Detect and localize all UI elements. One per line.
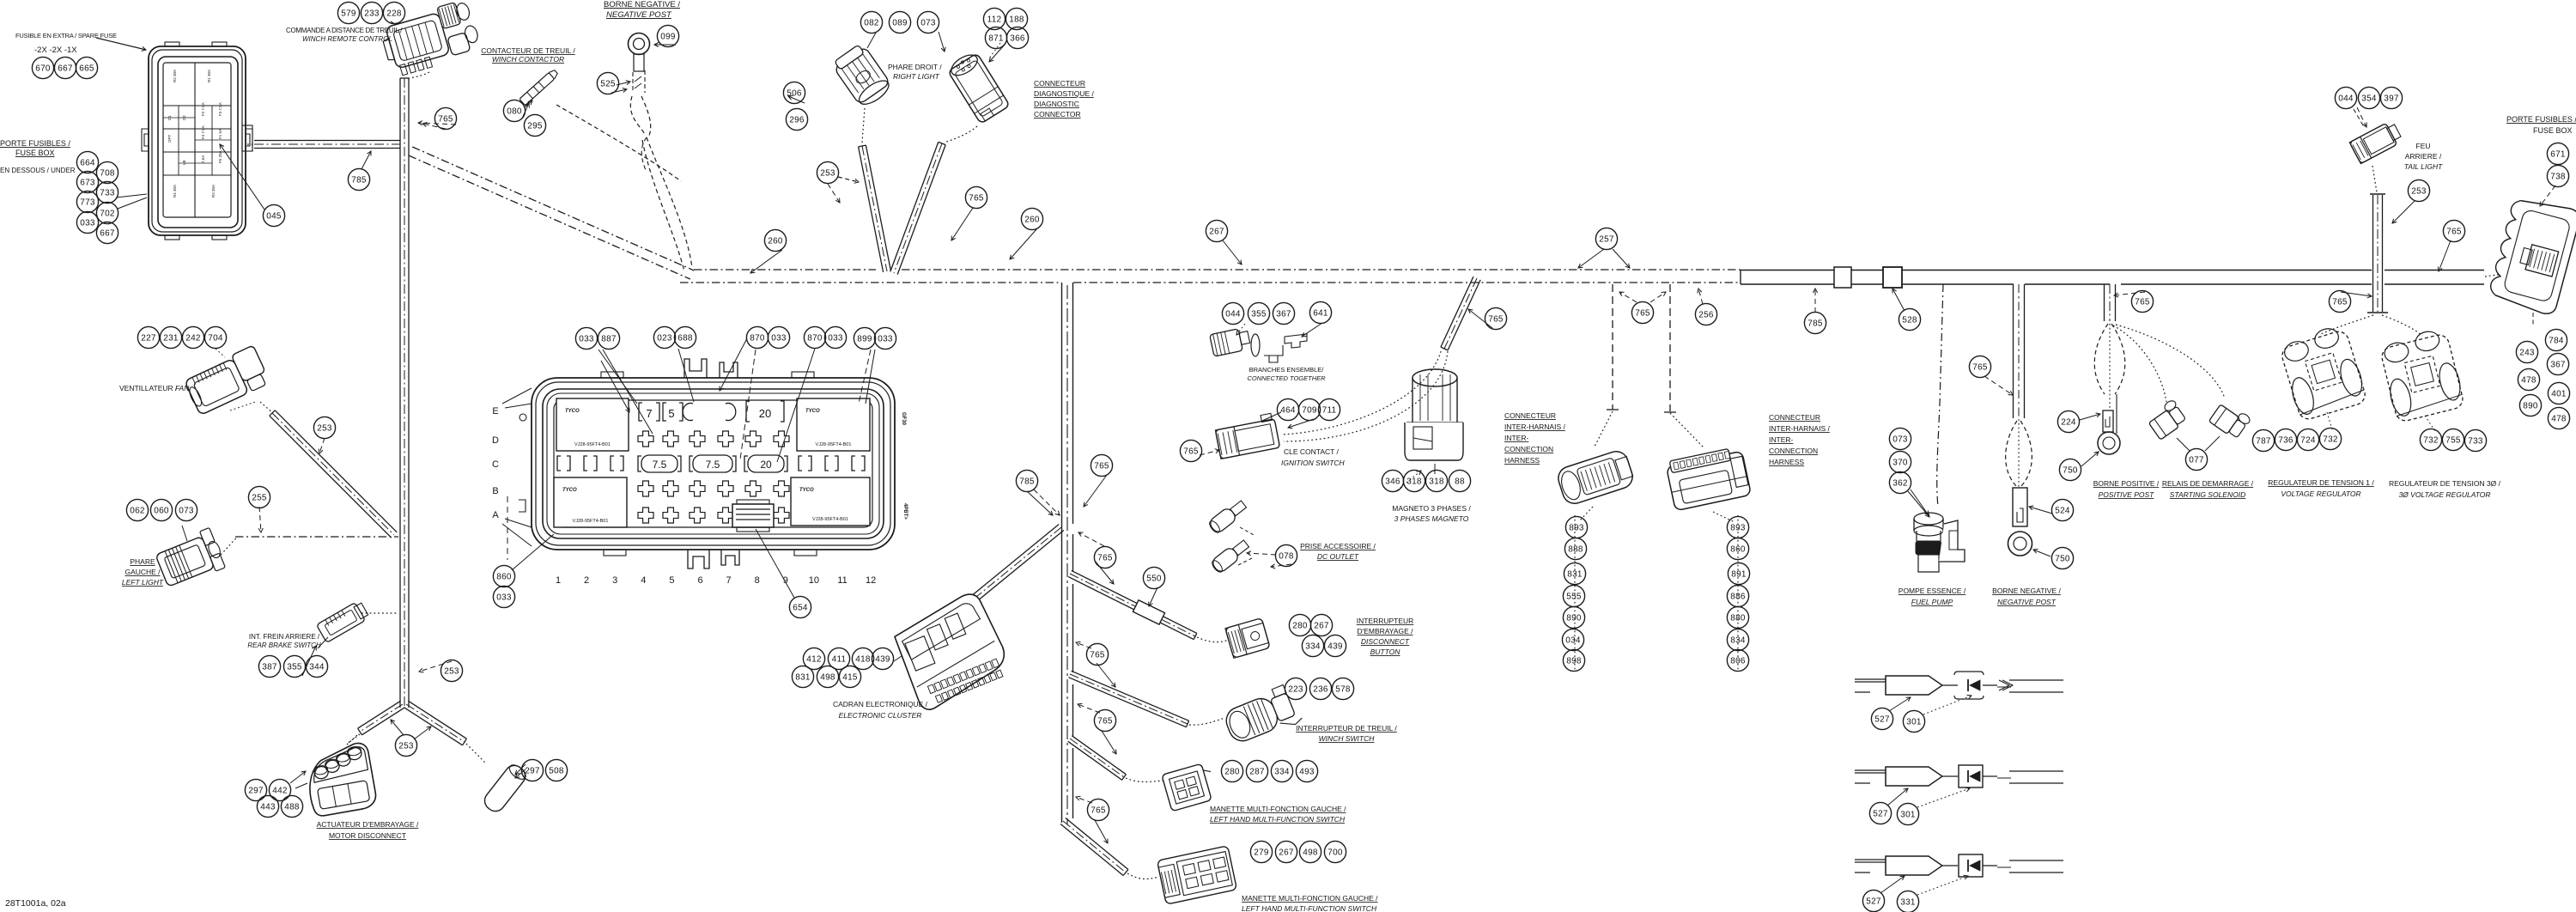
- svg-text:VOLTAGE REGULATOR: VOLTAGE REGULATOR: [2281, 489, 2360, 498]
- svg-text:A: A: [492, 510, 499, 520]
- svg-text:301: 301: [1906, 718, 1922, 727]
- svg-text:BORNE NEGATIVE /: BORNE NEGATIVE /: [604, 0, 680, 9]
- svg-text:301: 301: [1900, 811, 1916, 820]
- svg-text:654: 654: [793, 604, 808, 613]
- svg-text:034: 034: [1565, 636, 1581, 646]
- svg-text:478: 478: [2551, 415, 2567, 424]
- svg-text:CONNECTED TOGETHER: CONNECTED TOGETHER: [1247, 374, 1326, 382]
- svg-text:280: 280: [1224, 768, 1240, 777]
- svg-text:579: 579: [341, 9, 356, 19]
- svg-text:755: 755: [2445, 436, 2461, 446]
- svg-text:667: 667: [58, 64, 73, 74]
- svg-text:D2: D2: [182, 115, 186, 120]
- svg-text:CONNECTEUR: CONNECTEUR: [1769, 413, 1820, 422]
- svg-text:439: 439: [875, 655, 890, 665]
- svg-text:F1 5A: F1 5A: [218, 129, 222, 139]
- svg-text:498: 498: [820, 673, 835, 683]
- svg-text:-2X -2X -1X: -2X -2X -1X: [34, 46, 77, 55]
- svg-text:527: 527: [1866, 897, 1881, 907]
- svg-text:834: 834: [1730, 636, 1746, 646]
- svg-text:765: 765: [1488, 315, 1504, 325]
- svg-text:256: 256: [1698, 311, 1714, 320]
- svg-text:243: 243: [2519, 349, 2535, 358]
- svg-text:765: 765: [1094, 462, 1109, 471]
- svg-text:354: 354: [2361, 94, 2377, 104]
- svg-text:253: 253: [444, 667, 459, 677]
- svg-text:BRANCHES ENSEMBLE/: BRANCHES ENSEMBLE/: [1249, 366, 1325, 374]
- svg-text:062: 062: [130, 507, 145, 516]
- svg-text:331: 331: [1900, 898, 1916, 908]
- svg-text:418: 418: [855, 655, 871, 665]
- svg-text:344: 344: [309, 663, 325, 672]
- svg-text:555: 555: [1566, 593, 1582, 602]
- svg-text:370: 370: [1893, 459, 1908, 468]
- svg-text:073: 073: [1893, 435, 1908, 445]
- svg-text:099: 099: [660, 33, 676, 42]
- svg-text:888: 888: [1568, 545, 1583, 555]
- svg-text:893: 893: [1569, 524, 1584, 533]
- svg-text:765: 765: [1090, 651, 1105, 660]
- svg-text:738: 738: [2550, 173, 2566, 182]
- svg-text:PORTE FUSIBLES /: PORTE FUSIBLES /: [0, 139, 70, 148]
- svg-text:708: 708: [100, 169, 115, 179]
- svg-text:GF30: GF30: [901, 412, 906, 426]
- svg-text:TYCO: TYCO: [805, 409, 820, 414]
- svg-text:702: 702: [100, 210, 115, 219]
- svg-text:PHARE: PHARE: [130, 557, 155, 566]
- svg-text:BORNE POSITIVE /: BORNE POSITIVE /: [2093, 479, 2160, 488]
- svg-text:736: 736: [2278, 436, 2293, 446]
- svg-text:890: 890: [2523, 402, 2538, 411]
- svg-text:765: 765: [2332, 298, 2348, 307]
- svg-text:267: 267: [1279, 848, 1294, 858]
- svg-text:334: 334: [1274, 768, 1290, 777]
- svg-text:12: 12: [866, 575, 876, 586]
- svg-text:765: 765: [1097, 554, 1113, 563]
- svg-text:228: 228: [386, 9, 402, 19]
- svg-text:318: 318: [1429, 477, 1444, 487]
- svg-text:478: 478: [2521, 376, 2537, 386]
- svg-text:880: 880: [1730, 614, 1746, 623]
- svg-text:750: 750: [2055, 555, 2070, 564]
- svg-text:493: 493: [1299, 768, 1315, 777]
- svg-text:401: 401: [2551, 390, 2567, 399]
- svg-text:765: 765: [2135, 298, 2150, 307]
- svg-text:224: 224: [2061, 418, 2076, 428]
- svg-text:7: 7: [646, 407, 652, 420]
- svg-text:CONNECTOR: CONNECTOR: [1034, 110, 1081, 119]
- svg-text:665: 665: [79, 64, 94, 74]
- svg-text:BUTTON: BUTTON: [1370, 648, 1401, 656]
- svg-text:287: 287: [1249, 768, 1265, 777]
- svg-text:CONNECTION: CONNECTION: [1504, 445, 1553, 453]
- svg-text:887: 887: [601, 335, 617, 344]
- svg-text:88: 88: [1455, 477, 1465, 487]
- svg-text:366: 366: [1010, 34, 1025, 44]
- svg-text:506: 506: [787, 89, 802, 99]
- svg-text:E: E: [492, 406, 498, 416]
- svg-text:RIGHT LIGHT: RIGHT LIGHT: [893, 72, 940, 81]
- svg-text:MANETTE MULTI-FONCTION GAUCHE: MANETTE MULTI-FONCTION GAUCHE /: [1242, 894, 1378, 903]
- svg-text:CONNECTION: CONNECTION: [1769, 447, 1818, 455]
- svg-text:488: 488: [284, 803, 300, 812]
- svg-text:10: 10: [809, 575, 819, 586]
- svg-text:9: 9: [783, 575, 788, 586]
- svg-text:464: 464: [1280, 406, 1296, 416]
- svg-text:260: 260: [1024, 216, 1040, 225]
- svg-text:ELECTRONIC CLUSTER: ELECTRONIC CLUSTER: [839, 711, 922, 720]
- svg-text:ACTUATEUR D'EMBRAYAGE /: ACTUATEUR D'EMBRAYAGE /: [317, 820, 419, 829]
- svg-text:MOTOR DISCONNECT: MOTOR DISCONNECT: [329, 831, 406, 840]
- svg-text:765: 765: [2446, 228, 2462, 237]
- svg-text:MANETTE MULTI-FONCTION GAUCHE: MANETTE MULTI-FONCTION GAUCHE /: [1210, 805, 1346, 813]
- svg-text:F5 20A: F5 20A: [218, 150, 222, 163]
- svg-text:R4 30A: R4 30A: [173, 185, 177, 198]
- svg-text:7.5: 7.5: [706, 459, 720, 471]
- svg-text:CLE CONTACT /: CLE CONTACT /: [1284, 447, 1340, 456]
- svg-text:044: 044: [1225, 310, 1241, 319]
- svg-text:033: 033: [828, 334, 843, 344]
- svg-text:671: 671: [2550, 150, 2566, 160]
- svg-text:524: 524: [2055, 507, 2070, 516]
- svg-text:297: 297: [525, 767, 540, 776]
- svg-text:20: 20: [759, 407, 771, 420]
- svg-text:CONNECTEUR: CONNECTEUR: [1034, 79, 1085, 88]
- svg-text:296: 296: [789, 116, 805, 125]
- svg-text:VJ28-95FT4-B01: VJ28-95FT4-B01: [573, 519, 609, 524]
- svg-text:NEGATIVE POST: NEGATIVE POST: [606, 10, 672, 20]
- svg-text:TYCO: TYCO: [799, 488, 814, 493]
- svg-text:724: 724: [2300, 436, 2316, 446]
- svg-text:TYCO: TYCO: [562, 488, 577, 493]
- svg-text:B: B: [492, 486, 498, 496]
- svg-text:664: 664: [80, 159, 95, 168]
- svg-text:860: 860: [1730, 545, 1746, 555]
- svg-text:527: 527: [1874, 715, 1890, 725]
- svg-text:188: 188: [1009, 15, 1024, 25]
- svg-text:893: 893: [1730, 524, 1746, 533]
- svg-text:INT. FREIN ARRIERE /: INT. FREIN ARRIERE /: [249, 633, 320, 641]
- svg-text:871: 871: [988, 34, 1004, 44]
- svg-text:898: 898: [1566, 657, 1582, 666]
- svg-text:4: 4: [641, 575, 646, 586]
- svg-text:750: 750: [2063, 466, 2078, 476]
- svg-text:EN DESSOUS / UNDER: EN DESSOUS / UNDER: [0, 167, 76, 174]
- svg-text:870: 870: [750, 334, 765, 344]
- svg-text:260: 260: [768, 237, 783, 246]
- svg-text:023: 023: [657, 334, 672, 344]
- svg-text:POMPE ESSENCE /: POMPE ESSENCE /: [1899, 587, 1966, 595]
- svg-text:CADRAN ELECTRONIQUE /: CADRAN ELECTRONIQUE /: [833, 700, 928, 708]
- svg-text:7.5: 7.5: [653, 459, 667, 471]
- svg-text:R3 30A: R3 30A: [211, 185, 216, 198]
- svg-text:355: 355: [1251, 310, 1267, 319]
- svg-text:765: 765: [1635, 309, 1650, 319]
- svg-text:670: 670: [35, 64, 51, 74]
- svg-text:525: 525: [600, 80, 616, 89]
- svg-text:FUSE BOX: FUSE BOX: [2533, 126, 2573, 135]
- svg-text:8: 8: [755, 575, 760, 586]
- svg-text:R2 30A: R2 30A: [173, 70, 177, 82]
- svg-text:297: 297: [248, 787, 264, 796]
- svg-text:5: 5: [669, 575, 674, 586]
- svg-text:033: 033: [878, 335, 893, 344]
- svg-text:785: 785: [351, 176, 367, 185]
- svg-text:WINCH CONTACTOR: WINCH CONTACTOR: [492, 55, 564, 64]
- svg-text:773: 773: [80, 198, 95, 208]
- svg-text:7: 7: [726, 575, 732, 586]
- svg-text:765: 765: [969, 194, 984, 204]
- svg-text:498: 498: [1303, 848, 1318, 858]
- svg-text:DIAGNOSTIQUE /: DIAGNOSTIQUE /: [1034, 89, 1095, 98]
- svg-text:3: 3: [612, 575, 617, 586]
- svg-text:INTER-: INTER-: [1504, 434, 1529, 442]
- svg-text:INTERRUPTEUR DE TREUIL /: INTERRUPTEUR DE TREUIL /: [1296, 724, 1397, 733]
- svg-text:PRISE ACCESSOIRE /: PRISE ACCESSOIRE /: [1300, 542, 1376, 550]
- svg-text:673: 673: [80, 179, 95, 188]
- svg-text:COMMANDE A DISTANCE DE TREUIL: COMMANDE A DISTANCE DE TREUIL /: [286, 27, 403, 34]
- svg-text:LEFT HAND MULTI-FUNCTION SWITC: LEFT HAND MULTI-FUNCTION SWITCH: [1242, 904, 1377, 912]
- svg-text:STARTING SOLENOID: STARTING SOLENOID: [2170, 490, 2245, 499]
- svg-text:GAUCHE /: GAUCHE /: [125, 568, 161, 576]
- svg-text:F4 7.5A: F4 7.5A: [201, 125, 205, 139]
- svg-text:886: 886: [1730, 593, 1746, 602]
- svg-text:295: 295: [527, 122, 543, 131]
- svg-text:089: 089: [892, 19, 908, 28]
- svg-text:28T1001a, 02a: 28T1001a, 02a: [5, 898, 66, 909]
- svg-text:078: 078: [1279, 552, 1294, 562]
- svg-text:MAGNETO 3 PHASES /: MAGNETO 3 PHASES /: [1392, 504, 1471, 513]
- svg-text:411: 411: [832, 655, 847, 665]
- svg-text:WINCH SWITCH: WINCH SWITCH: [1319, 734, 1376, 743]
- svg-text:362: 362: [1893, 479, 1908, 489]
- svg-text:TAIL LIGHT: TAIL LIGHT: [2404, 162, 2443, 171]
- svg-text:870: 870: [807, 334, 823, 344]
- svg-text:REGULATEUR DE TENSION 1 /: REGULATEUR DE TENSION 1 /: [2268, 478, 2374, 487]
- svg-text:242: 242: [185, 334, 201, 344]
- svg-text:667: 667: [100, 229, 115, 239]
- svg-text:DC OUTLET: DC OUTLET: [1317, 552, 1359, 561]
- svg-text:POSITIVE POST: POSITIVE POST: [2099, 490, 2155, 499]
- svg-text:223: 223: [1288, 685, 1303, 695]
- svg-text:FUSE BOX: FUSE BOX: [15, 149, 55, 157]
- svg-text:7.5A: 7.5A: [201, 155, 205, 163]
- svg-text:231: 231: [163, 334, 179, 344]
- svg-text:NEGATIVE POST: NEGATIVE POST: [1997, 598, 2057, 606]
- svg-text:253: 253: [317, 424, 332, 434]
- svg-text:PHARE DROIT /: PHARE DROIT /: [888, 63, 942, 71]
- svg-text:INTER-: INTER-: [1769, 435, 1794, 444]
- svg-text:VENTILLATEUR /: VENTILLATEUR /: [119, 384, 178, 392]
- svg-text:236: 236: [1313, 685, 1328, 695]
- svg-text:641: 641: [1313, 309, 1328, 319]
- svg-text:INTERRUPTEUR: INTERRUPTEUR: [1357, 617, 1414, 625]
- svg-text:112: 112: [987, 15, 1002, 25]
- svg-text:073: 073: [920, 19, 936, 28]
- svg-text:355: 355: [287, 663, 302, 672]
- svg-text:578: 578: [1335, 685, 1351, 695]
- svg-text:LEFT HAND MULTI-FUNCTION SWITC: LEFT HAND MULTI-FUNCTION SWITCH: [1210, 815, 1346, 824]
- svg-text:F3 7.5A: F3 7.5A: [218, 102, 222, 116]
- svg-text:527: 527: [1873, 810, 1888, 819]
- svg-text:PORTE FUSIBLES /: PORTE FUSIBLES /: [2506, 115, 2576, 124]
- svg-text:550: 550: [1146, 575, 1162, 584]
- svg-text:3Ø VOLTAGE REGULATOR: 3Ø VOLTAGE REGULATOR: [2398, 490, 2490, 499]
- svg-text:BORNE NEGATIVE /: BORNE NEGATIVE /: [1992, 587, 2061, 595]
- svg-text:1: 1: [556, 575, 561, 586]
- svg-text:367: 367: [2550, 361, 2566, 370]
- svg-text:RELAIS DE DEMARRAGE /: RELAIS DE DEMARRAGE /: [2162, 479, 2254, 488]
- svg-text:IGNITION SWITCH: IGNITION SWITCH: [1281, 459, 1346, 467]
- svg-text:077: 077: [2189, 456, 2204, 465]
- svg-text:890: 890: [1566, 614, 1582, 623]
- svg-text:CONNECTEUR: CONNECTEUR: [1504, 411, 1556, 420]
- svg-text:INTER-HARNAIS /: INTER-HARNAIS /: [1504, 423, 1565, 431]
- svg-text:C: C: [492, 459, 499, 470]
- svg-text:346: 346: [1385, 477, 1400, 487]
- svg-text:REGULATEUR DE TENSION 3Ø /: REGULATEUR DE TENSION 3Ø /: [2389, 479, 2501, 488]
- svg-text:DISCONNECT: DISCONNECT: [1361, 637, 1410, 646]
- svg-text:732: 732: [2323, 435, 2338, 445]
- svg-text:D: D: [492, 435, 499, 446]
- svg-text:318: 318: [1406, 477, 1422, 487]
- svg-text:D'EMBRAYAGE /: D'EMBRAYAGE /: [1357, 627, 1413, 635]
- svg-text:HARNESS: HARNESS: [1769, 458, 1804, 466]
- svg-text:765: 765: [1097, 717, 1113, 727]
- svg-text:784: 784: [2549, 337, 2564, 346]
- svg-text:733: 733: [2468, 437, 2483, 447]
- svg-text:11: 11: [837, 575, 847, 586]
- svg-text:FEU: FEU: [2416, 142, 2431, 150]
- svg-text:765: 765: [1972, 363, 1988, 373]
- svg-text:REAR BRAKE SWITCH: REAR BRAKE SWITCH: [247, 641, 321, 649]
- svg-text:ARRIERE /: ARRIERE /: [2405, 152, 2442, 161]
- svg-text:279: 279: [1254, 848, 1269, 858]
- svg-text:FAN: FAN: [175, 384, 190, 392]
- svg-text:765: 765: [1091, 806, 1106, 816]
- svg-text:FUSIBLE EN EXTRA / SPARE FUSE: FUSIBLE EN EXTRA / SPARE FUSE: [15, 32, 117, 40]
- svg-text:045: 045: [266, 212, 282, 222]
- svg-text:367: 367: [1276, 310, 1291, 319]
- svg-text:WINCH REMOTE CONTROL: WINCH REMOTE CONTROL: [302, 35, 392, 43]
- svg-text:DIAGNOSTIC: DIAGNOSTIC: [1034, 100, 1079, 108]
- svg-text:044: 044: [2338, 94, 2354, 104]
- svg-text:FUEL PUMP: FUEL PUMP: [1911, 598, 1953, 606]
- svg-text:253: 253: [820, 169, 835, 179]
- svg-text:860: 860: [496, 573, 512, 582]
- svg-text:080: 080: [507, 107, 522, 117]
- svg-text:688: 688: [677, 334, 693, 344]
- svg-text:VJ28-95FT4-B01: VJ28-95FT4-B01: [574, 442, 611, 447]
- svg-text:387: 387: [262, 663, 277, 672]
- svg-text:OPT: OPT: [167, 134, 172, 143]
- svg-text:CONTACTEUR DE TREUIL /: CONTACTEUR DE TREUIL /: [481, 46, 575, 55]
- svg-text:2: 2: [584, 575, 589, 586]
- svg-text:4PBT>: 4PBT>: [902, 503, 908, 520]
- svg-text:033: 033: [496, 593, 512, 603]
- svg-text:704: 704: [208, 334, 223, 344]
- svg-text:F2 7.5A: F2 7.5A: [201, 102, 205, 116]
- svg-text:TYCO: TYCO: [565, 409, 580, 414]
- svg-text:415: 415: [842, 673, 858, 683]
- svg-text:060: 060: [154, 507, 169, 516]
- svg-text:082: 082: [864, 19, 879, 28]
- svg-text:700: 700: [1327, 848, 1343, 858]
- svg-text:6: 6: [697, 575, 702, 586]
- svg-text:508: 508: [549, 767, 564, 776]
- svg-text:VJ28-95FT4-B01: VJ28-95FT4-B01: [816, 442, 852, 447]
- svg-text:831: 831: [795, 673, 811, 683]
- svg-text:033: 033: [579, 335, 594, 344]
- svg-text:709: 709: [1302, 406, 1317, 416]
- svg-text:443: 443: [260, 803, 276, 812]
- svg-text:267: 267: [1209, 228, 1224, 237]
- svg-text:334: 334: [1305, 642, 1321, 652]
- svg-text:HARNESS: HARNESS: [1504, 456, 1540, 465]
- svg-text:785: 785: [1807, 319, 1823, 329]
- svg-text:899: 899: [857, 335, 872, 344]
- svg-text:439: 439: [1327, 642, 1343, 652]
- svg-text:732: 732: [2423, 436, 2439, 446]
- svg-text:LB: LB: [182, 160, 186, 165]
- svg-text:412: 412: [806, 655, 822, 665]
- svg-text:765: 765: [438, 115, 453, 125]
- svg-text:253: 253: [2411, 187, 2427, 197]
- svg-text:5: 5: [668, 407, 674, 420]
- svg-text:267: 267: [1314, 622, 1329, 631]
- svg-text:253: 253: [398, 742, 414, 751]
- svg-text:891: 891: [1731, 570, 1747, 580]
- svg-text:711: 711: [1322, 406, 1337, 416]
- svg-text:785: 785: [1019, 477, 1035, 487]
- svg-text:VJ28-95FT4-B01: VJ28-95FT4-B01: [812, 517, 848, 522]
- svg-text:787: 787: [2256, 437, 2271, 447]
- svg-text:033: 033: [771, 334, 787, 344]
- svg-text:R1 30A: R1 30A: [207, 70, 211, 82]
- svg-text:255: 255: [252, 494, 267, 503]
- svg-text:073: 073: [179, 507, 194, 516]
- svg-text:733: 733: [100, 189, 115, 198]
- svg-text:831: 831: [1567, 570, 1583, 580]
- svg-text:765: 765: [1183, 447, 1199, 457]
- svg-text:257: 257: [1599, 235, 1614, 245]
- svg-text:033: 033: [80, 219, 95, 228]
- svg-text:233: 233: [364, 9, 380, 19]
- svg-text:INTER-HARNAIS /: INTER-HARNAIS /: [1769, 424, 1830, 433]
- svg-text:528: 528: [1902, 316, 1917, 325]
- svg-text:280: 280: [1292, 622, 1308, 631]
- svg-text:442: 442: [272, 787, 288, 796]
- svg-text:806: 806: [1730, 657, 1746, 666]
- svg-text:397: 397: [2384, 94, 2399, 104]
- svg-text:227: 227: [141, 334, 156, 344]
- svg-text:3 PHASES MAGNETO: 3 PHASES MAGNETO: [1394, 514, 1469, 523]
- svg-text:20: 20: [760, 459, 772, 471]
- svg-text:D1: D1: [167, 115, 172, 120]
- svg-text:LEFT LIGHT: LEFT LIGHT: [122, 578, 164, 587]
